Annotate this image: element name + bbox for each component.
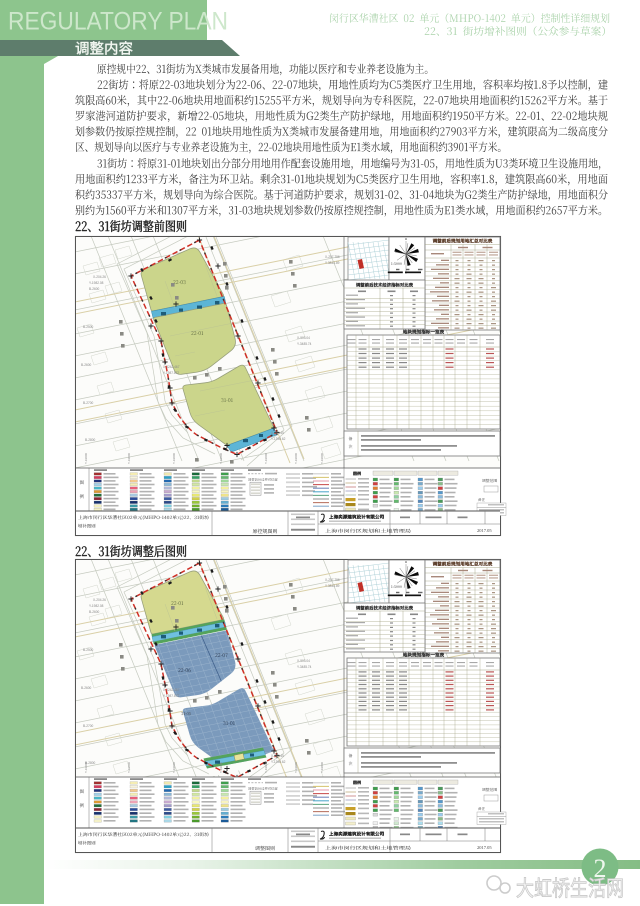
svg-text:B-2600: B-2600: [89, 610, 100, 614]
svg-text:2017.05: 2017.05: [477, 528, 492, 533]
svg-text:B-2600: B-2600: [81, 686, 92, 690]
svg-text:X-903.04: X-903.04: [297, 659, 310, 663]
svg-text:Y-19000: Y-19000: [294, 762, 298, 773]
svg-text:Y-19000: Y-19000: [264, 453, 268, 464]
svg-text:B-2500: B-2500: [83, 325, 94, 329]
svg-text:X-257.756: X-257.756: [325, 255, 340, 259]
svg-text:REGULATORY PLAN: REGULATORY PLAN: [8, 8, 228, 36]
svg-text:Y-19000: Y-19000: [127, 453, 131, 464]
svg-text:Y-19000: Y-19000: [84, 453, 88, 464]
svg-text:Y-19000: Y-19000: [294, 453, 298, 464]
svg-text:Y-1987.872: Y-1987.872: [163, 694, 179, 698]
svg-text:B-2600: B-2600: [89, 287, 100, 291]
svg-text:X-3242.467: X-3242.467: [163, 365, 180, 369]
svg-text:X-3242.467: X-3242.467: [163, 688, 180, 692]
svg-text:Y-1398.62: Y-1398.62: [271, 760, 286, 764]
svg-text:Y-19000: Y-19000: [219, 762, 223, 773]
svg-text:B-2700: B-2700: [83, 724, 94, 728]
svg-text:B-2600: B-2600: [81, 363, 92, 367]
svg-text:Y-3843.89: Y-3843.89: [325, 584, 340, 588]
svg-text:2017.05: 2017.05: [477, 845, 492, 850]
svg-text:Y-1398.62: Y-1398.62: [271, 437, 286, 441]
svg-text:Y-19000: Y-19000: [172, 762, 176, 773]
svg-text:Y-1982.08: Y-1982.08: [89, 604, 104, 608]
svg-text:X-204.26: X-204.26: [93, 275, 106, 279]
svg-text:X-393.45: X-393.45: [271, 754, 284, 758]
svg-text:X-204.26: X-204.26: [93, 598, 106, 602]
svg-text:Y-3843.89: Y-3843.89: [325, 261, 340, 265]
svg-text:B-2800: B-2800: [85, 438, 96, 442]
svg-text:Y-19000: Y-19000: [172, 453, 176, 464]
svg-text:Y-19000: Y-19000: [219, 453, 223, 464]
svg-text:Y-3485.74: Y-3485.74: [297, 342, 312, 346]
svg-text:Y-1982.08: Y-1982.08: [89, 281, 104, 285]
svg-text:X-257.756: X-257.756: [325, 578, 340, 582]
svg-text:Y-19000: Y-19000: [320, 762, 324, 773]
svg-text:Y-1987.872: Y-1987.872: [163, 371, 179, 375]
svg-text:X-903.04: X-903.04: [297, 336, 310, 340]
svg-text:B-2500: B-2500: [83, 648, 94, 652]
svg-text:B-2700: B-2700: [83, 401, 94, 405]
svg-text:Y-3485.74: Y-3485.74: [297, 665, 312, 669]
svg-text:X-393.45: X-393.45: [271, 431, 284, 435]
svg-text:Y-19000: Y-19000: [320, 453, 324, 464]
svg-text:Y-19000: Y-19000: [84, 762, 88, 773]
svg-text:Y-19000: Y-19000: [127, 762, 131, 773]
svg-text:Y-19000: Y-19000: [264, 762, 268, 773]
